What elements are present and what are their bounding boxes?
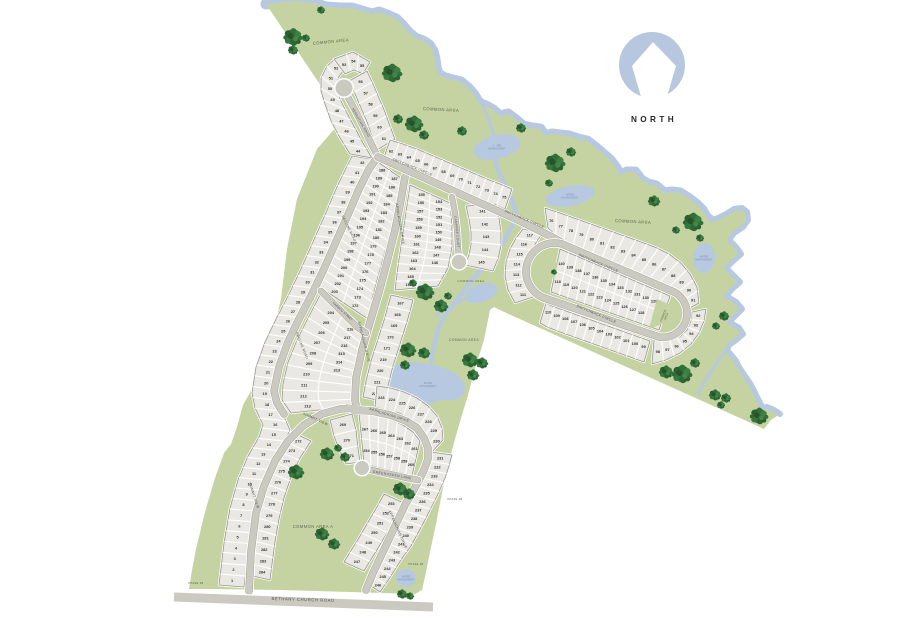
svg-text:200: 200 xyxy=(341,265,348,270)
svg-text:27: 27 xyxy=(291,309,295,314)
svg-text:228: 228 xyxy=(425,419,432,424)
svg-text:130: 130 xyxy=(642,295,649,300)
svg-text:122: 122 xyxy=(588,291,595,296)
svg-text:136: 136 xyxy=(592,275,599,280)
svg-text:155: 155 xyxy=(418,192,425,197)
svg-text:207: 207 xyxy=(314,340,321,345)
svg-text:225: 225 xyxy=(399,400,406,405)
svg-text:238: 238 xyxy=(411,516,418,521)
svg-text:264: 264 xyxy=(388,433,395,438)
svg-text:COMMON AREA: COMMON AREA xyxy=(457,279,484,283)
svg-text:157: 157 xyxy=(417,209,424,214)
svg-text:87: 87 xyxy=(662,267,666,272)
svg-text:161: 161 xyxy=(413,242,420,247)
svg-text:142: 142 xyxy=(482,221,489,226)
svg-text:236: 236 xyxy=(419,499,426,504)
svg-text:273: 273 xyxy=(289,448,296,453)
svg-text:250: 250 xyxy=(371,530,378,535)
svg-text:267: 267 xyxy=(362,426,369,431)
svg-text:115: 115 xyxy=(516,251,523,256)
svg-text:152: 152 xyxy=(436,214,443,219)
svg-text:282: 282 xyxy=(261,547,268,552)
svg-text:128: 128 xyxy=(638,310,645,315)
svg-text:269: 269 xyxy=(340,422,347,427)
svg-text:MANAGEMENT: MANAGEMENT xyxy=(419,385,437,388)
svg-text:17: 17 xyxy=(268,412,272,417)
svg-text:156: 156 xyxy=(418,200,425,205)
svg-text:198: 198 xyxy=(347,249,354,254)
svg-text:174: 174 xyxy=(357,286,364,291)
svg-text:131: 131 xyxy=(634,292,641,297)
svg-text:217: 217 xyxy=(344,335,351,340)
svg-text:229: 229 xyxy=(431,428,438,433)
svg-text:159: 159 xyxy=(415,225,422,230)
svg-text:90: 90 xyxy=(687,288,691,293)
svg-text:105: 105 xyxy=(588,325,595,330)
svg-text:219: 219 xyxy=(380,357,387,362)
svg-text:246: 246 xyxy=(375,582,382,587)
svg-text:125: 125 xyxy=(613,301,620,306)
svg-text:COMMON AREA: COMMON AREA xyxy=(449,338,480,342)
svg-text:251: 251 xyxy=(377,520,384,525)
svg-text:103: 103 xyxy=(606,332,613,337)
svg-text:20: 20 xyxy=(264,380,268,385)
svg-text:277: 277 xyxy=(271,490,278,495)
svg-text:189: 189 xyxy=(376,176,383,181)
svg-text:281: 281 xyxy=(262,536,269,541)
svg-text:113: 113 xyxy=(513,272,520,277)
svg-text:248: 248 xyxy=(360,550,367,555)
svg-text:165: 165 xyxy=(407,274,414,279)
svg-text:195: 195 xyxy=(357,224,364,229)
svg-text:160: 160 xyxy=(414,233,421,238)
svg-text:204: 204 xyxy=(328,310,335,315)
svg-text:211: 211 xyxy=(301,383,308,388)
svg-text:77: 77 xyxy=(559,224,563,229)
svg-text:177: 177 xyxy=(365,261,372,266)
svg-text:169: 169 xyxy=(391,323,398,328)
svg-text:151: 151 xyxy=(436,222,443,227)
svg-text:7: 7 xyxy=(240,513,242,518)
svg-text:275: 275 xyxy=(278,469,285,474)
svg-text:134: 134 xyxy=(609,281,616,286)
svg-text:185: 185 xyxy=(386,193,393,198)
svg-text:171: 171 xyxy=(384,346,391,351)
svg-text:148: 148 xyxy=(434,245,441,250)
svg-text:255: 255 xyxy=(371,450,378,455)
svg-text:247: 247 xyxy=(354,559,361,564)
svg-text:315: 315 xyxy=(338,351,345,356)
svg-text:140: 140 xyxy=(558,261,565,266)
svg-text:97: 97 xyxy=(665,347,669,352)
svg-text:149: 149 xyxy=(435,237,442,242)
svg-text:117: 117 xyxy=(527,233,533,238)
svg-text:30: 30 xyxy=(305,280,309,285)
svg-text:257: 257 xyxy=(386,453,393,458)
svg-text:187: 187 xyxy=(391,176,398,181)
svg-text:256: 256 xyxy=(379,451,386,456)
svg-text:237: 237 xyxy=(415,508,422,513)
svg-text:206: 206 xyxy=(318,330,325,335)
svg-text:263: 263 xyxy=(397,436,404,441)
svg-text:274: 274 xyxy=(283,458,290,463)
svg-text:175: 175 xyxy=(359,277,366,282)
svg-text:102: 102 xyxy=(614,335,621,340)
svg-text:313: 313 xyxy=(334,368,341,373)
svg-text:168: 168 xyxy=(394,312,401,317)
svg-text:186: 186 xyxy=(389,185,396,190)
svg-text:178: 178 xyxy=(367,252,374,257)
svg-text:253: 253 xyxy=(388,501,395,506)
svg-text:176: 176 xyxy=(362,269,369,274)
svg-text:137: 137 xyxy=(584,271,591,276)
svg-text:173: 173 xyxy=(354,294,361,299)
svg-text:203: 203 xyxy=(331,289,338,294)
svg-text:40: 40 xyxy=(350,180,354,185)
svg-text:146: 146 xyxy=(432,260,439,265)
svg-text:118: 118 xyxy=(555,279,562,284)
svg-text:223: 223 xyxy=(378,395,385,400)
svg-text:276: 276 xyxy=(275,480,282,485)
svg-text:280: 280 xyxy=(264,524,271,529)
svg-text:232: 232 xyxy=(434,465,441,470)
svg-text:162: 162 xyxy=(412,250,419,255)
svg-text:266: 266 xyxy=(371,428,378,433)
svg-text:212: 212 xyxy=(300,394,307,399)
svg-text:172: 172 xyxy=(352,303,359,308)
svg-text:231: 231 xyxy=(437,455,444,460)
svg-text:258: 258 xyxy=(394,456,401,461)
svg-text:230: 230 xyxy=(433,439,440,444)
svg-text:106: 106 xyxy=(579,322,586,327)
svg-text:109: 109 xyxy=(553,313,560,318)
svg-text:314: 314 xyxy=(336,359,343,364)
svg-text:133: 133 xyxy=(617,285,624,290)
svg-text:132: 132 xyxy=(626,288,633,293)
svg-text:37: 37 xyxy=(337,210,341,215)
svg-text:261: 261 xyxy=(411,446,418,451)
svg-text:67: 67 xyxy=(433,165,437,170)
svg-text:283: 283 xyxy=(260,558,267,563)
svg-text:210: 210 xyxy=(303,372,310,377)
svg-text:147: 147 xyxy=(433,252,440,257)
svg-text:182: 182 xyxy=(378,218,385,223)
svg-text:104: 104 xyxy=(597,328,604,333)
svg-text:143: 143 xyxy=(483,234,490,239)
svg-text:270: 270 xyxy=(343,438,350,443)
svg-text:121: 121 xyxy=(579,288,586,293)
svg-text:167: 167 xyxy=(397,301,404,306)
svg-text:PHASE 4B: PHASE 4B xyxy=(409,563,424,566)
svg-text:164: 164 xyxy=(409,266,416,271)
svg-text:179: 179 xyxy=(370,244,377,249)
svg-text:194: 194 xyxy=(360,216,367,221)
svg-text:201: 201 xyxy=(338,273,345,278)
svg-text:249: 249 xyxy=(366,540,373,545)
svg-text:221: 221 xyxy=(374,380,381,385)
svg-text:220: 220 xyxy=(377,368,384,373)
svg-text:110: 110 xyxy=(545,309,551,314)
svg-text:227: 227 xyxy=(418,411,425,416)
svg-text:139: 139 xyxy=(567,264,574,269)
svg-text:193: 193 xyxy=(363,208,370,213)
svg-text:144: 144 xyxy=(482,247,489,252)
svg-text:57: 57 xyxy=(364,90,368,95)
svg-text:135: 135 xyxy=(600,278,607,283)
svg-text:COMMON AREA A: COMMON AREA A xyxy=(293,524,334,529)
svg-text:111: 111 xyxy=(520,292,527,297)
svg-text:239: 239 xyxy=(407,525,414,530)
svg-text:MANAGEMENT: MANAGEMENT xyxy=(488,148,506,151)
svg-text:205: 205 xyxy=(323,320,330,325)
svg-text:244: 244 xyxy=(384,566,391,571)
svg-text:224: 224 xyxy=(389,397,396,402)
svg-text:278: 278 xyxy=(268,502,275,507)
svg-text:190: 190 xyxy=(372,184,379,189)
svg-text:199: 199 xyxy=(344,257,351,262)
svg-text:114: 114 xyxy=(514,262,521,267)
svg-text:124: 124 xyxy=(605,298,612,303)
svg-text:260: 260 xyxy=(408,462,415,467)
svg-text:150: 150 xyxy=(435,230,442,235)
svg-text:80: 80 xyxy=(590,236,594,241)
svg-text:127: 127 xyxy=(630,307,637,312)
svg-text:145: 145 xyxy=(478,259,485,264)
svg-text:170: 170 xyxy=(387,334,394,339)
svg-text:126: 126 xyxy=(621,304,628,309)
svg-text:254: 254 xyxy=(363,448,370,453)
svg-text:272: 272 xyxy=(295,439,302,444)
svg-text:181: 181 xyxy=(375,227,382,232)
svg-text:PHASE 4B: PHASE 4B xyxy=(448,498,463,501)
svg-text:208: 208 xyxy=(310,351,317,356)
svg-text:PHASE 4B: PHASE 4B xyxy=(189,582,204,585)
svg-text:120: 120 xyxy=(571,285,578,290)
svg-text:234: 234 xyxy=(427,482,434,487)
svg-text:154: 154 xyxy=(436,199,443,204)
svg-text:184: 184 xyxy=(383,201,390,206)
svg-text:119: 119 xyxy=(563,282,570,287)
svg-text:138: 138 xyxy=(575,268,582,273)
svg-text:163: 163 xyxy=(411,258,418,263)
svg-text:60: 60 xyxy=(377,125,381,130)
svg-text:235: 235 xyxy=(423,491,430,496)
svg-text:191: 191 xyxy=(369,192,376,197)
svg-text:MANAGEMENT: MANAGEMENT xyxy=(397,579,415,582)
svg-text:107: 107 xyxy=(571,319,578,324)
svg-text:265: 265 xyxy=(379,430,386,435)
svg-text:213: 213 xyxy=(304,404,311,409)
svg-text:100: 100 xyxy=(632,341,639,346)
svg-text:183: 183 xyxy=(381,210,388,215)
svg-text:50: 50 xyxy=(328,86,332,91)
svg-text:242: 242 xyxy=(393,550,400,555)
svg-text:188: 188 xyxy=(379,167,386,172)
svg-text:47: 47 xyxy=(339,118,343,123)
svg-text:108: 108 xyxy=(562,316,569,321)
svg-text:101: 101 xyxy=(623,338,630,343)
svg-text:112: 112 xyxy=(515,283,522,288)
svg-text:70: 70 xyxy=(459,177,463,182)
svg-text:MANAGEMENT: MANAGEMENT xyxy=(695,259,713,262)
svg-text:202: 202 xyxy=(334,281,341,286)
svg-text:279: 279 xyxy=(266,513,273,518)
svg-text:245: 245 xyxy=(379,574,386,579)
svg-text:NORTH: NORTH xyxy=(631,115,677,124)
svg-text:243: 243 xyxy=(389,558,396,563)
svg-text:262: 262 xyxy=(404,440,411,445)
svg-text:180: 180 xyxy=(373,235,380,240)
svg-text:233: 233 xyxy=(431,473,438,478)
svg-text:209: 209 xyxy=(306,361,313,366)
svg-text:116: 116 xyxy=(521,242,528,247)
svg-text:123: 123 xyxy=(596,295,603,300)
svg-text:153: 153 xyxy=(436,207,443,212)
svg-text:MANAGEMENT: MANAGEMENT xyxy=(561,197,579,200)
svg-text:284: 284 xyxy=(259,570,266,575)
svg-text:216: 216 xyxy=(341,343,348,348)
svg-text:226: 226 xyxy=(409,405,416,410)
svg-text:192: 192 xyxy=(366,200,373,205)
svg-text:158: 158 xyxy=(416,217,423,222)
